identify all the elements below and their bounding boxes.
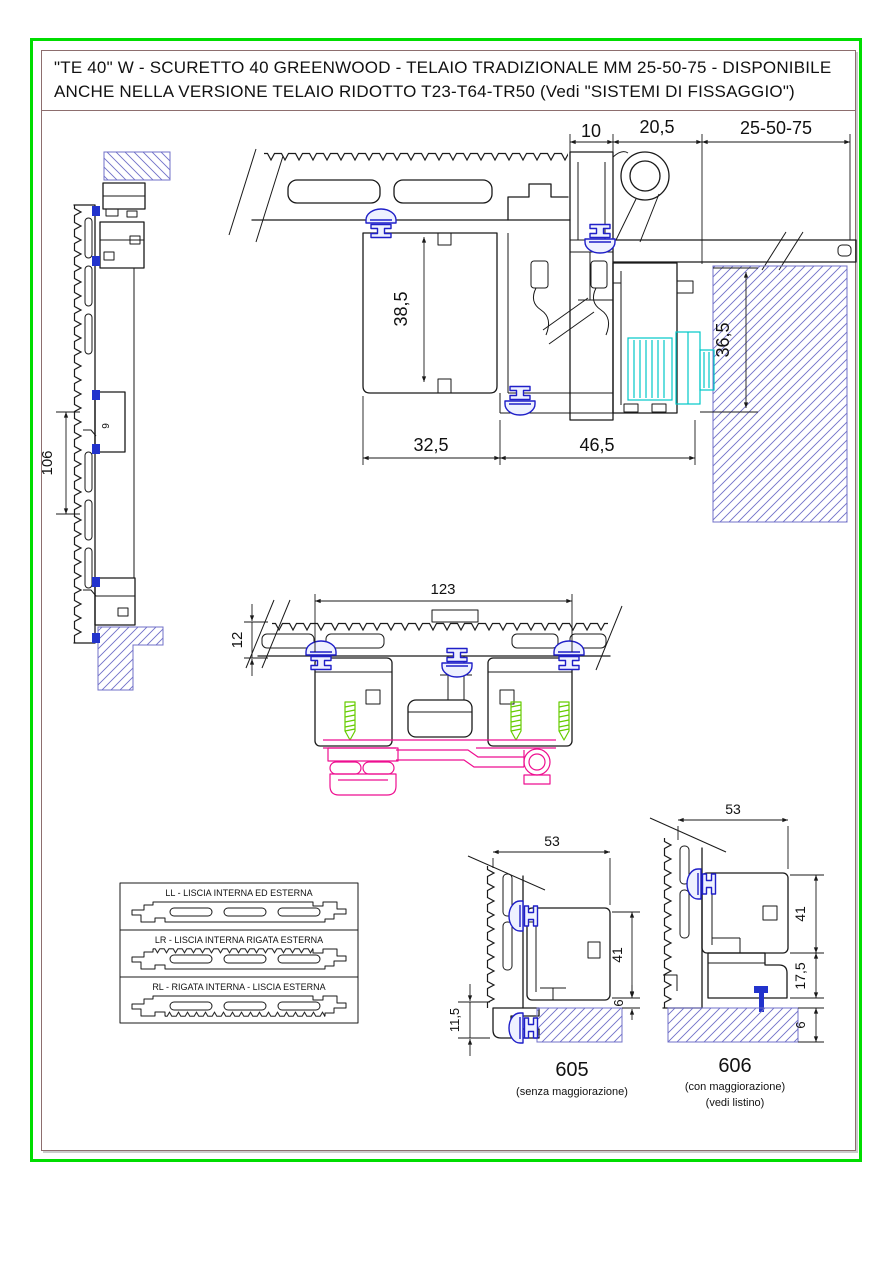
- masonry-wall: [713, 266, 847, 522]
- legend-row-1-label: LL - LISCIA INTERNA ED ESTERNA: [165, 888, 312, 898]
- dim-38-5: 38,5: [391, 291, 411, 326]
- dim-25-50-75: 25-50-75: [740, 118, 812, 138]
- vertical-cross-section: 9 106: [39, 152, 170, 690]
- anchor-screw: [628, 332, 714, 404]
- break-line: [229, 149, 283, 242]
- gasket-clip: [585, 225, 615, 254]
- dim-46-5: 46,5: [579, 435, 614, 455]
- legend-table: LL - LISCIA INTERNA ED ESTERNA LR - LISC…: [120, 883, 358, 1023]
- dim-605-6: 6: [611, 999, 626, 1006]
- dim-605-41: 41: [609, 947, 625, 963]
- scuretto-box-profile: [363, 233, 508, 393]
- mid-box-profile: 9: [95, 392, 125, 452]
- dim-20-5: 20,5: [639, 117, 674, 137]
- drawing-sheet: "TE 40" W - SCURETTO 40 GREENWOOD - TELA…: [0, 0, 892, 1263]
- profile-rl: [132, 996, 346, 1017]
- dim-606-53: 53: [725, 801, 741, 817]
- dimension-606-17-5: 17,5: [790, 953, 824, 998]
- fixing-screws: [345, 702, 569, 740]
- slat-profile-606: [663, 838, 702, 1008]
- main-cross-section: 10 20,5 25-50-75 38,5 36,5 32,5: [229, 117, 856, 522]
- frame-profile: [531, 152, 613, 420]
- dim-36-5: 36,5: [713, 322, 733, 357]
- detail-606-caption-1: (con maggiorazione): [685, 1081, 785, 1093]
- horizontal-cross-section: 123 12: [229, 581, 622, 795]
- gasket-clip: [554, 641, 584, 670]
- box-profile-605: [527, 908, 610, 1000]
- hinge-mechanism: [323, 740, 556, 795]
- clip-squares: [92, 206, 100, 643]
- dim-605-11-5: 11,5: [447, 1008, 462, 1032]
- dim-12: 12: [229, 632, 246, 649]
- dimension-inner-height: 38,5: [391, 237, 424, 382]
- bottom-box-profile: [95, 578, 135, 625]
- dimension-123: 123: [315, 581, 572, 652]
- dim-606-6: 6: [793, 1021, 808, 1028]
- slat-profile-605: [486, 866, 523, 1008]
- dim-606-41: 41: [792, 906, 808, 922]
- dimension-606-53: 53: [678, 801, 788, 869]
- dimension-605-41: 41: [609, 912, 640, 998]
- gasket-clip: [366, 209, 396, 238]
- legend-row-2-label: LR - LISCIA INTERNA RIGATA ESTERNA: [155, 935, 323, 945]
- detail-606-caption-2: (vedi listino): [706, 1097, 765, 1109]
- dimension-605-11-5: 11,5: [447, 984, 490, 1056]
- profile-lr: [132, 947, 346, 969]
- gasket-clip: [509, 1013, 538, 1043]
- dim-32-5: 32,5: [413, 435, 448, 455]
- dim-606-17-5: 17,5: [792, 962, 808, 989]
- gasket-clip: [505, 387, 535, 416]
- slat-profile-top: [229, 149, 570, 242]
- gasket-clip: [687, 869, 716, 899]
- frame-profile-top: [100, 183, 145, 268]
- part-marking: 9: [101, 423, 112, 429]
- dim-106: 106: [39, 450, 56, 475]
- dim-605-53: 53: [544, 833, 560, 849]
- break-line: [468, 856, 545, 890]
- gasket-clip: [442, 649, 472, 678]
- gasket-clip: [306, 641, 336, 670]
- hinge-knuckle: [613, 152, 669, 242]
- dim-10: 10: [581, 121, 601, 141]
- detail-605-number: 605: [555, 1059, 588, 1081]
- masonry-wall-606: [668, 1008, 798, 1042]
- dimension-606-41: 41: [790, 875, 824, 953]
- break-line: [762, 232, 803, 270]
- dim-123: 123: [430, 581, 455, 598]
- detail-605: 53 41 6 11,5 605 (senza maggiorazione): [447, 833, 640, 1098]
- gasket-clip: [509, 901, 538, 931]
- legend-row-3-label: RL - RIGATA INTERNA - LISCIA ESTERNA: [152, 982, 325, 992]
- spacer-profile-606: [708, 953, 787, 998]
- frame-extension-flange: [613, 232, 856, 270]
- masonry-wall-top: [104, 152, 170, 180]
- masonry-wall-bottom: [98, 627, 163, 690]
- detail-606: 53 41 17,5 6 606 (con maggiorazione) (ve…: [650, 801, 824, 1109]
- dimension-605-53: 53: [493, 833, 610, 905]
- profile-ll: [132, 902, 346, 922]
- detail-605-caption: (senza maggiorazione): [516, 1086, 628, 1098]
- masonry-wall-605: [537, 1008, 622, 1042]
- technical-drawing: 10 20,5 25-50-75 38,5 36,5 32,5: [0, 0, 892, 1263]
- detail-606-number: 606: [718, 1055, 751, 1077]
